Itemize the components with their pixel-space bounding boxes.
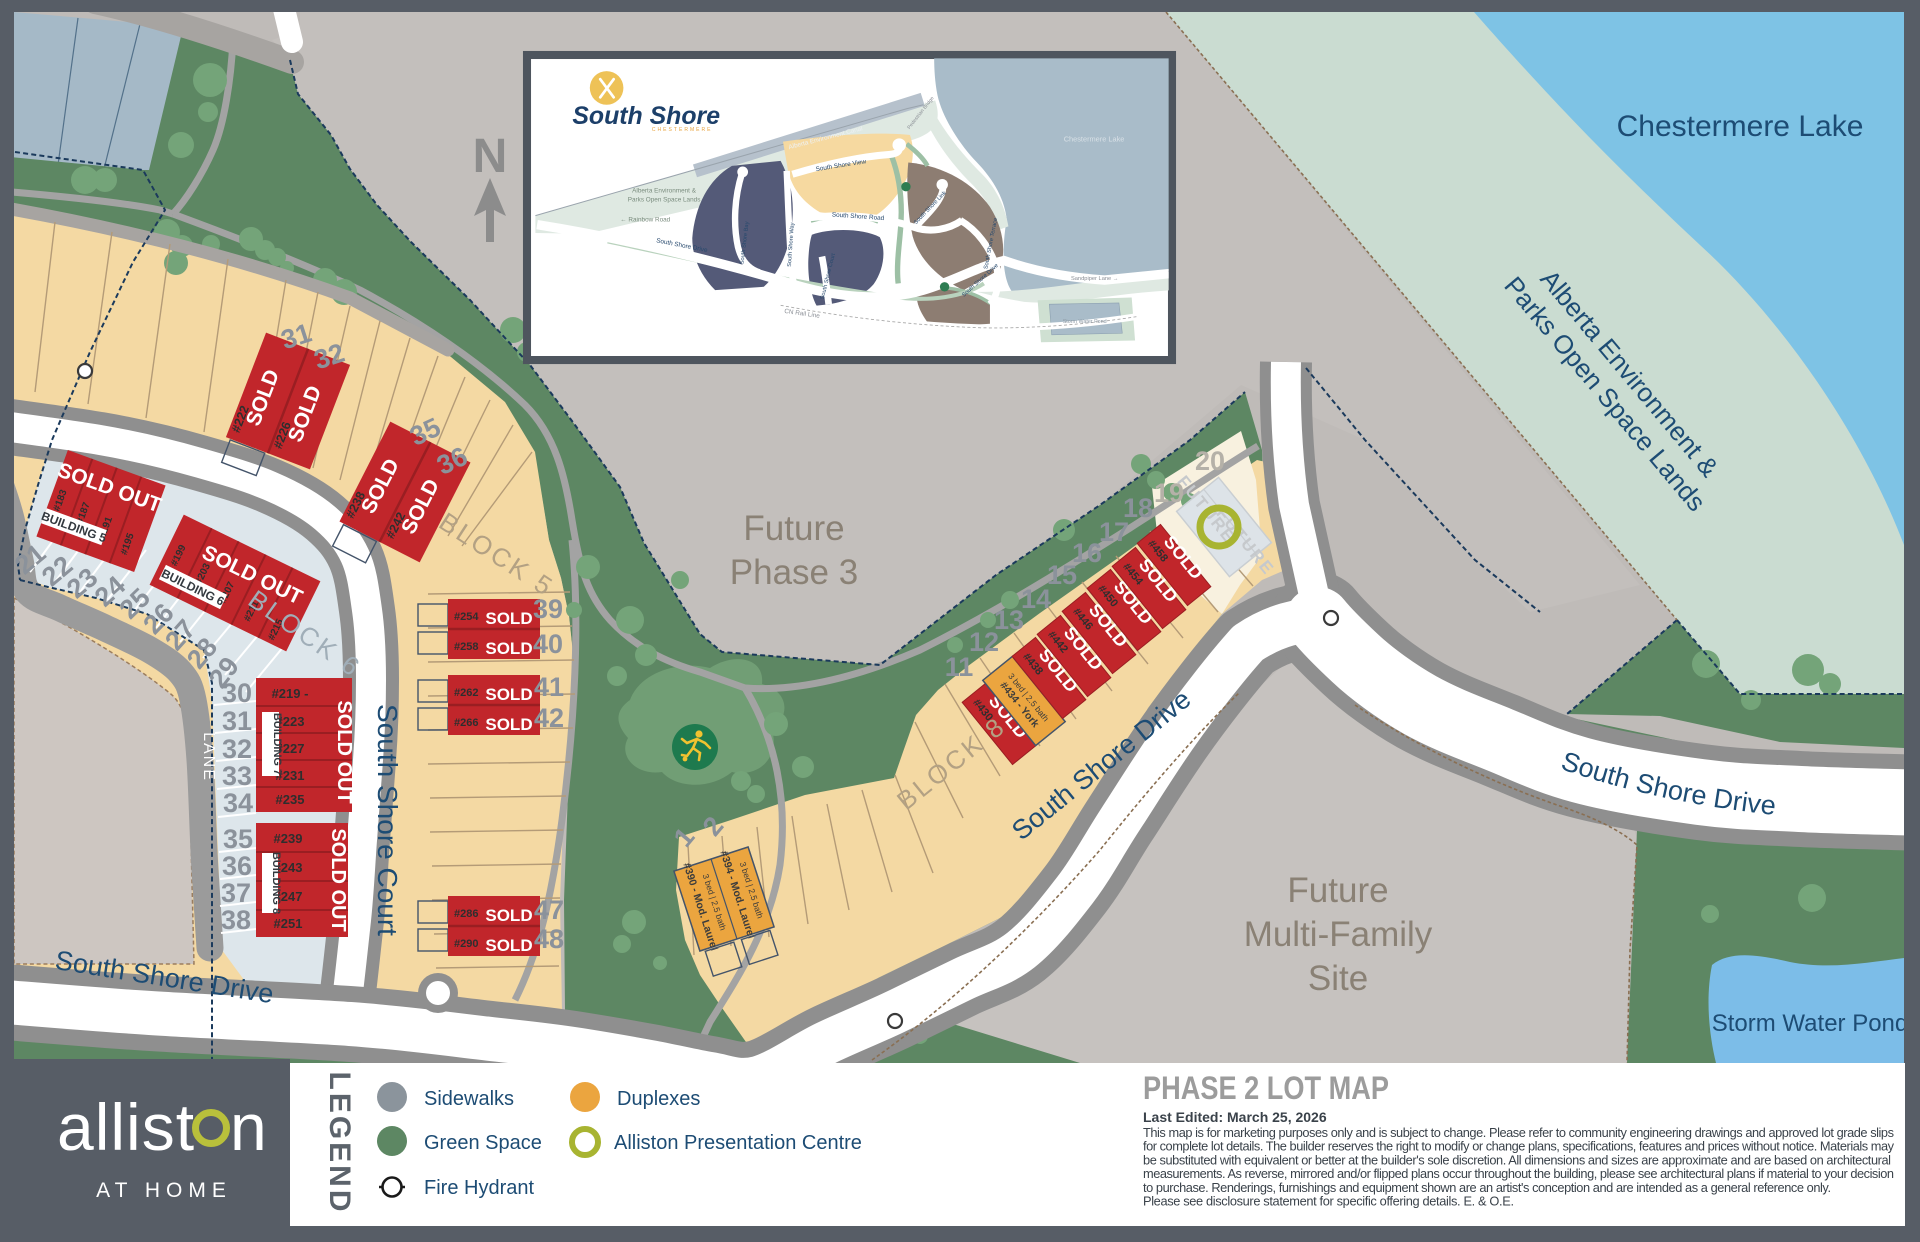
svg-text:13: 13: [994, 605, 1024, 635]
svg-text:30: 30: [222, 678, 252, 708]
svg-text:20: 20: [1195, 446, 1225, 476]
svg-text:LEGEND: LEGEND: [323, 1071, 356, 1214]
svg-text:SOLD OUT: SOLD OUT: [333, 700, 355, 803]
svg-text:42: 42: [534, 703, 564, 733]
svg-text:Future: Future: [1287, 871, 1388, 910]
svg-text:#251: #251: [274, 916, 303, 931]
svg-text:South Shore Court: South Shore Court: [372, 704, 403, 936]
svg-text:LANE: LANE: [200, 732, 217, 782]
svg-text:Storm Water Pond: Storm Water Pond: [1712, 1010, 1909, 1037]
svg-text:N: N: [473, 130, 508, 183]
svg-text:BUILDING 7: BUILDING 7: [271, 713, 283, 775]
svg-text:Sandpiper Lane →: Sandpiper Lane →: [1071, 276, 1119, 282]
svg-text:SOLD: SOLD: [485, 715, 532, 734]
svg-text:#258: #258: [454, 641, 478, 653]
svg-text:Fire Hydrant: Fire Hydrant: [424, 1177, 534, 1199]
svg-text:Storm Water Pond: Storm Water Pond: [1063, 319, 1107, 325]
svg-text:AT HOME: AT HOME: [96, 1179, 232, 1202]
svg-text:39: 39: [533, 594, 563, 624]
svg-text:#239: #239: [274, 831, 303, 846]
svg-text:#235: #235: [276, 792, 305, 807]
svg-text:#290: #290: [454, 938, 478, 950]
svg-text:#286: #286: [454, 908, 478, 920]
svg-text:Alberta Environment &: Alberta Environment &: [632, 188, 697, 195]
svg-text:19: 19: [1154, 478, 1184, 508]
svg-text:#262: #262: [454, 687, 478, 699]
svg-text:SOLD: SOLD: [485, 609, 532, 628]
svg-text:SOLD: SOLD: [485, 685, 532, 704]
svg-text:Green Space: Green Space: [424, 1132, 542, 1154]
svg-text:Sidewalks: Sidewalks: [424, 1088, 514, 1110]
svg-text:32: 32: [222, 734, 252, 764]
svg-text:40: 40: [533, 629, 563, 659]
svg-text:Phase 3: Phase 3: [730, 553, 858, 592]
svg-text:SOLD OUT: SOLD OUT: [327, 828, 349, 931]
svg-text:South Shore: South Shore: [572, 103, 720, 130]
svg-text:18: 18: [1123, 493, 1153, 523]
svg-text:16: 16: [1072, 538, 1102, 568]
svg-text:← Rainbow Road: ← Rainbow Road: [620, 217, 670, 224]
svg-text:33: 33: [222, 761, 252, 791]
svg-text:PHASE 2 LOT MAP: PHASE 2 LOT MAP: [1143, 1070, 1389, 1106]
svg-text:#254: #254: [454, 611, 479, 623]
svg-text:Please see disclosure statemen: Please see disclosure statement for spec…: [1143, 1194, 1514, 1209]
svg-text:allist: allist: [57, 1090, 195, 1164]
svg-text:38: 38: [221, 905, 251, 935]
svg-text:SOLD: SOLD: [485, 906, 532, 925]
svg-text:36: 36: [222, 851, 252, 881]
svg-text:Site: Site: [1308, 959, 1368, 998]
svg-text:Future: Future: [743, 509, 844, 548]
svg-text:Multi-Family: Multi-Family: [1244, 915, 1433, 954]
svg-text:n: n: [230, 1090, 267, 1164]
svg-text:#219 -: #219 -: [272, 686, 309, 701]
svg-text:48: 48: [534, 924, 564, 954]
svg-text:Chestermere Lake: Chestermere Lake: [1617, 110, 1864, 143]
svg-text:BUILDING 8: BUILDING 8: [270, 852, 282, 914]
svg-text:#266: #266: [454, 717, 478, 729]
svg-text:Duplexes: Duplexes: [617, 1088, 700, 1110]
svg-text:SOLD: SOLD: [485, 639, 532, 658]
svg-text:Alliston Presentation Centre: Alliston Presentation Centre: [614, 1132, 862, 1154]
svg-text:35: 35: [223, 824, 253, 854]
svg-text:47: 47: [534, 895, 564, 925]
svg-text:41: 41: [534, 672, 564, 702]
svg-text:Chestermere Lake: Chestermere Lake: [1064, 135, 1125, 144]
svg-text:31: 31: [222, 706, 252, 736]
svg-text:SOLD: SOLD: [485, 936, 532, 955]
svg-text:37: 37: [221, 878, 251, 908]
svg-text:Last Edited: March 25, 2026: Last Edited: March 25, 2026: [1143, 1109, 1327, 1125]
svg-text:Parks Open Space Lands: Parks Open Space Lands: [628, 196, 701, 203]
svg-text:34: 34: [223, 788, 253, 818]
svg-text:CHESTERMERE: CHESTERMERE: [652, 127, 713, 133]
